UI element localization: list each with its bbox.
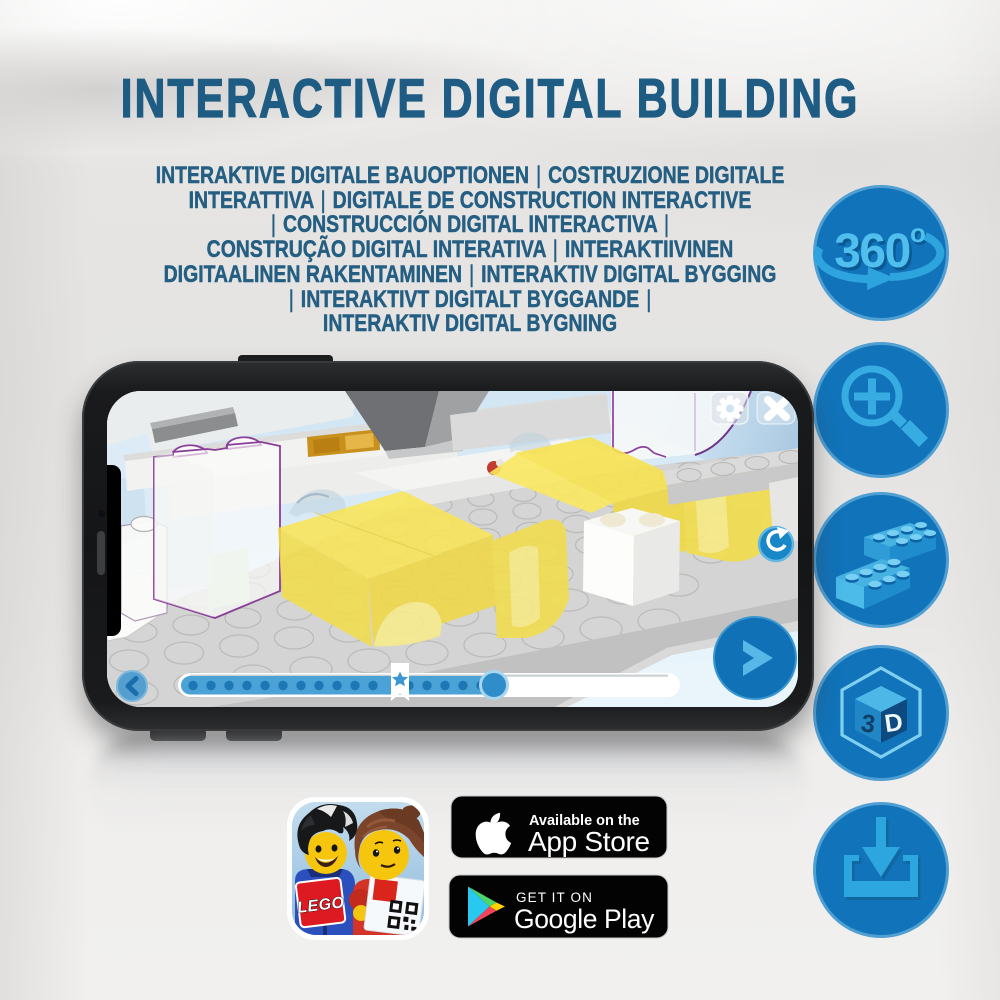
svg-text:Google Play: Google Play xyxy=(514,904,655,934)
svg-text:App Store: App Store xyxy=(528,826,650,857)
svg-text:D: D xyxy=(883,708,905,738)
svg-text:o: o xyxy=(910,218,926,248)
svg-text:GET IT ON: GET IT ON xyxy=(516,890,593,905)
